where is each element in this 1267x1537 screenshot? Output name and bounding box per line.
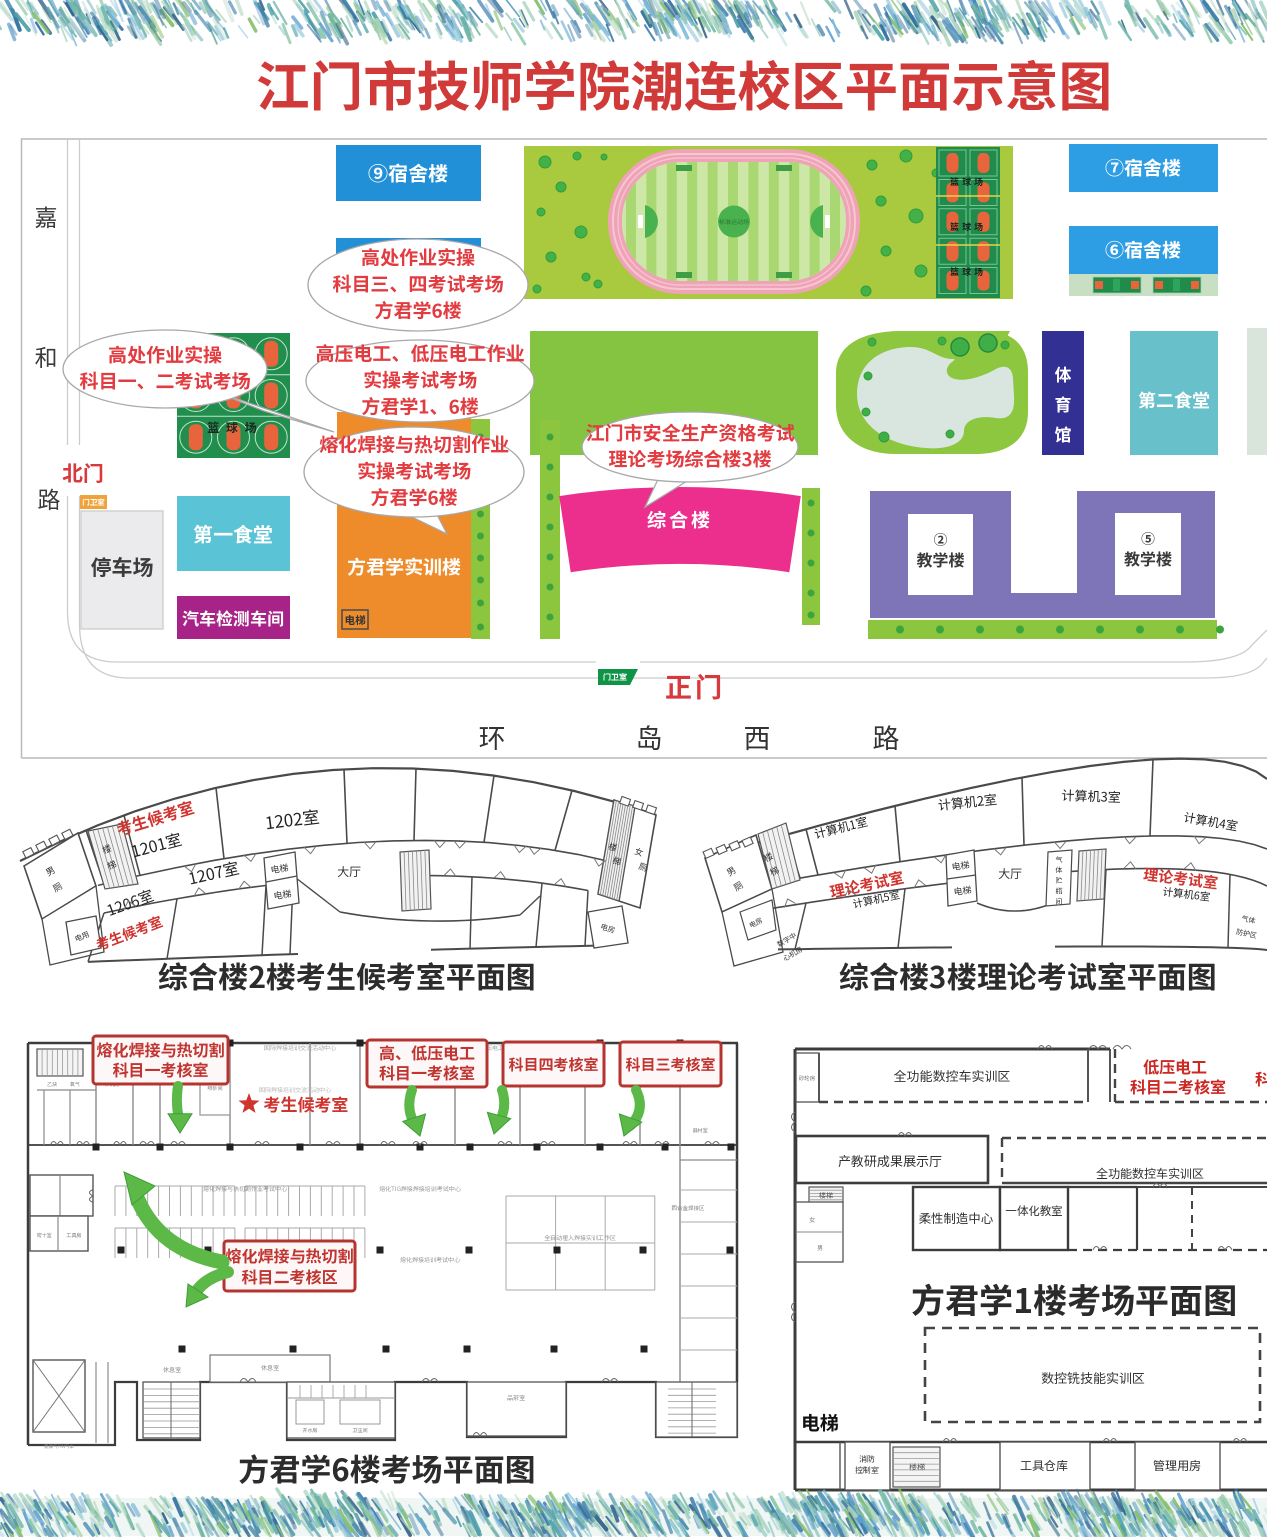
svg-text:科目一考核室: 科目一考核室 [379, 1060, 475, 1084]
svg-text:休息室: 休息室 [163, 1365, 182, 1374]
svg-text:北门: 北门 [62, 458, 104, 488]
svg-text:科目二考核室: 科目二考核室 [1130, 1074, 1226, 1098]
svg-text:科目一、二考试考场: 科目一、二考试考场 [79, 367, 250, 394]
svg-text:第二食堂: 第二食堂 [1138, 387, 1210, 413]
svg-text:间: 间 [1056, 897, 1063, 907]
svg-text:计算机3室: 计算机3室 [1061, 785, 1121, 806]
svg-text:岛: 岛 [636, 717, 663, 756]
svg-text:国际焊接培训交流活动中心: 国际焊接培训交流活动中心 [264, 1043, 337, 1052]
svg-text:国际焊接培训交流活动中心: 国际焊接培训交流活动中心 [259, 1085, 332, 1094]
svg-text:理论考场综合楼3楼: 理论考场综合楼3楼 [608, 445, 771, 472]
svg-text:熔化TIG焊接焊接培训考试中心: 熔化TIG焊接焊接培训考试中心 [379, 1184, 461, 1193]
svg-text:消防: 消防 [859, 1454, 875, 1465]
svg-text:第一食堂: 第一食堂 [193, 519, 273, 548]
svg-text:大厅: 大厅 [998, 865, 1022, 882]
svg-text:楼梯: 楼梯 [819, 1191, 833, 1201]
svg-text:计算机1室: 计算机1室 [812, 813, 869, 843]
svg-text:产教研成果展示厅: 产教研成果展示厅 [838, 1151, 942, 1170]
svg-text:女: 女 [809, 1215, 815, 1224]
svg-text:气: 气 [1056, 855, 1064, 865]
svg-text:工具仓库: 工具仓库 [1020, 1457, 1068, 1474]
svg-text:方君学6楼考场平面图: 方君学6楼考场平面图 [238, 1445, 535, 1490]
svg-text:门卫室: 门卫室 [603, 672, 627, 683]
svg-text:心机房: 心机房 [781, 945, 804, 964]
svg-text:考生候考室: 考生候考室 [93, 911, 166, 955]
svg-text:科目四考核室: 科目四考核室 [508, 1054, 598, 1075]
svg-text:气体: 气体 [1241, 914, 1257, 927]
svg-text:科目三考核室: 科目三考核室 [625, 1054, 715, 1075]
svg-text:科目二考核区: 科目二考核区 [241, 1264, 337, 1288]
svg-text:路: 路 [873, 717, 900, 756]
svg-text:防护区: 防护区 [1235, 927, 1258, 941]
svg-text:方君学1、6楼: 方君学1、6楼 [361, 393, 478, 420]
svg-text:实操考试考场: 实操考试考场 [357, 457, 471, 484]
svg-text:综合楼: 综合楼 [647, 506, 713, 533]
svg-text:环: 环 [479, 717, 506, 756]
svg-text:器材室: 器材室 [692, 1127, 707, 1134]
svg-text:控制室: 控制室 [855, 1465, 879, 1476]
svg-text:计算机4室: 计算机4室 [1182, 808, 1239, 834]
svg-text:方君学6楼: 方君学6楼 [370, 484, 457, 511]
svg-text:1202室: 1202室 [263, 803, 320, 834]
svg-text:江门市技师学院潮连校区平面示意图: 江门市技师学院潮连校区平面示意图 [256, 45, 1112, 122]
svg-text:全功能数控车实训区: 全功能数控车实训区 [893, 1066, 1010, 1085]
svg-text:高处作业实操: 高处作业实操 [108, 341, 222, 368]
svg-text:管理用房: 管理用房 [1153, 1457, 1201, 1474]
svg-text:氧气: 氧气 [70, 1081, 80, 1088]
svg-text:育: 育 [1055, 391, 1072, 416]
svg-text:柔性制造中心: 柔性制造中心 [918, 1208, 994, 1227]
svg-text:科目三、四考试考场: 科目三、四考试考场 [332, 270, 503, 297]
svg-text:停车场: 停车场 [91, 552, 154, 582]
svg-text:方君学6楼: 方君学6楼 [374, 297, 461, 324]
svg-text:⑥宿舍楼: ⑥宿舍楼 [1105, 236, 1181, 263]
svg-text:熔化焊接与热切割作业考试中心: 熔化焊接与热切割作业考试中心 [203, 1184, 288, 1193]
svg-text:体: 体 [1054, 361, 1072, 386]
svg-text:⑦宿舍楼: ⑦宿舍楼 [1105, 154, 1181, 181]
svg-text:楼梯: 楼梯 [909, 1462, 925, 1473]
svg-text:电梯: 电梯 [801, 1409, 839, 1436]
svg-text:电梯: 电梯 [345, 613, 366, 628]
svg-text:电梯: 电梯 [951, 858, 972, 874]
svg-text:江门市安全生产资格考试: 江门市安全生产资格考试 [585, 419, 794, 446]
svg-text:科: 科 [1255, 1066, 1267, 1090]
svg-text:全自动埋入焊接实训工作区: 全自动埋入焊接实训工作区 [544, 1233, 616, 1242]
svg-text:正门: 正门 [665, 666, 725, 705]
svg-text:高压电工、低压电工作业: 高压电工、低压电工作业 [315, 340, 524, 367]
svg-text:1207室: 1207室 [186, 855, 242, 890]
svg-text:大厅: 大厅 [337, 863, 361, 880]
svg-text:西: 西 [744, 717, 771, 756]
svg-text:卫生间: 卫生间 [352, 1427, 367, 1434]
svg-text:教学楼: 教学楼 [916, 547, 964, 571]
svg-text:考生候考室: 考生候考室 [264, 1091, 349, 1116]
svg-text:品茶室: 品茶室 [507, 1393, 526, 1402]
svg-text:篮球场: 篮球场 [950, 220, 986, 233]
svg-text:教学楼: 教学楼 [1124, 546, 1172, 570]
svg-text:嘉: 嘉 [35, 199, 58, 233]
svg-text:熔化焊接与热切割作业: 熔化焊接与热切割作业 [319, 431, 509, 458]
svg-text:砂轮房: 砂轮房 [798, 1074, 816, 1082]
svg-text:熔化焊接培训考试中心: 熔化焊接培训考试中心 [400, 1255, 461, 1264]
svg-text:综合楼2楼考生候考室平面图: 综合楼2楼考生候考室平面图 [158, 953, 536, 997]
svg-text:全功能数控车实训区: 全功能数控车实训区 [1096, 1165, 1204, 1182]
svg-text:体: 体 [1056, 866, 1063, 876]
svg-text:乙炔: 乙炔 [47, 1081, 57, 1088]
svg-text:综合楼3楼理论考试室平面图: 综合楼3楼理论考试室平面图 [839, 953, 1217, 997]
svg-text:电梯: 电梯 [953, 883, 974, 899]
svg-text:四合金焊接区: 四合金焊接区 [671, 1204, 705, 1212]
svg-text:喷砂间: 喷砂间 [207, 1085, 222, 1092]
svg-text:贮: 贮 [1056, 876, 1063, 886]
svg-text:篮球场: 篮球场 [950, 175, 986, 188]
svg-text:数控铣技能实训区: 数控铣技能实训区 [1041, 1368, 1145, 1387]
svg-text:方君学1楼考场平面图: 方君学1楼考场平面图 [911, 1274, 1237, 1323]
svg-text:瓶: 瓶 [1056, 887, 1063, 897]
svg-text:高处作业实操: 高处作业实操 [361, 244, 475, 271]
svg-text:篮 球 场: 篮 球 场 [207, 419, 258, 436]
svg-text:馆: 馆 [1055, 421, 1072, 446]
svg-text:科目一考核室: 科目一考核室 [112, 1057, 208, 1081]
svg-text:⑨宿舍楼: ⑨宿舍楼 [368, 158, 448, 187]
svg-text:路: 路 [38, 481, 61, 515]
svg-text:休息室: 休息室 [261, 1363, 280, 1372]
svg-text:密十室: 密十室 [36, 1232, 51, 1239]
svg-text:方君学实训楼: 方君学实训楼 [347, 553, 461, 580]
svg-text:标准运动场: 标准运动场 [719, 217, 749, 226]
svg-text:氮保气TIN气车: 氮保气TIN气车 [44, 1444, 74, 1450]
svg-text:汽车检测车间: 汽车检测车间 [182, 605, 284, 630]
svg-text:门卫室: 门卫室 [82, 497, 105, 508]
svg-text:实操考试考场: 实操考试考场 [363, 366, 477, 393]
svg-text:和: 和 [35, 339, 58, 373]
svg-text:一体化教室: 一体化教室 [1005, 1203, 1063, 1219]
svg-text:男: 男 [817, 1243, 823, 1252]
svg-text:篮球场: 篮球场 [950, 265, 986, 278]
svg-text:开水房: 开水房 [302, 1427, 317, 1434]
svg-text:工具房: 工具房 [66, 1232, 81, 1239]
